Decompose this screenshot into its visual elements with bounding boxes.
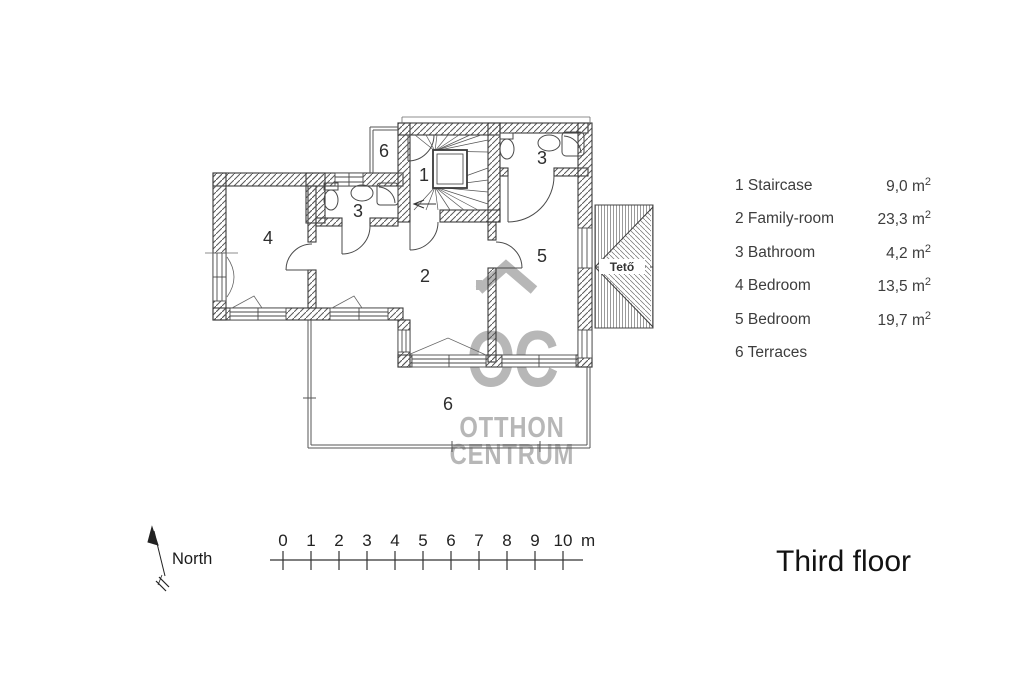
toilet-icon bbox=[324, 190, 338, 210]
room-label-staircase: 1 bbox=[419, 165, 429, 185]
sink-icon bbox=[351, 185, 373, 201]
legend-row: 2 Family-room23,3 m2 bbox=[735, 203, 931, 237]
doors bbox=[286, 135, 554, 270]
page-title: Third floor bbox=[776, 545, 911, 579]
toilet-icon bbox=[500, 139, 514, 159]
legend-row: 3 Bathroom4,2 m2 bbox=[735, 236, 931, 270]
room-label-terrace-bottom: 6 bbox=[443, 394, 453, 414]
north-label: North bbox=[172, 550, 212, 569]
legend-room-area: 13,5 m2 bbox=[877, 276, 931, 296]
legend-room-name: 4 Bedroom bbox=[735, 277, 811, 295]
scale-bar: 012345678910m bbox=[270, 531, 595, 570]
scale-tick-label: 5 bbox=[418, 531, 427, 550]
legend-room-name: 2 Family-room bbox=[735, 210, 834, 228]
terrace-bottom-rails bbox=[303, 320, 590, 452]
roof-area: Tető bbox=[595, 205, 653, 328]
roof-label: Tető bbox=[610, 260, 634, 274]
scale-tick-label: 6 bbox=[446, 531, 455, 550]
legend-room-area: 4,2 m2 bbox=[886, 243, 931, 263]
room-label-bedroom-left: 4 bbox=[263, 228, 273, 248]
scale-tick-label: 4 bbox=[390, 531, 399, 550]
room-label-terrace-top: 6 bbox=[379, 141, 389, 161]
scale-unit-label: m bbox=[581, 531, 595, 550]
legend-row: 4 Bedroom13,5 m2 bbox=[735, 270, 931, 304]
legend-row: 6 Terraces bbox=[735, 337, 931, 371]
scale-tick-label: 8 bbox=[502, 531, 511, 550]
room-label-bathroom-top: 3 bbox=[537, 148, 547, 168]
toilet-icon bbox=[500, 133, 513, 139]
legend-room-name: 6 Terraces bbox=[735, 344, 807, 362]
legend-room-name: 1 Staircase bbox=[735, 177, 813, 195]
legend-row: 5 Bedroom19,7 m2 bbox=[735, 303, 931, 337]
room-label-bedroom-right: 5 bbox=[537, 246, 547, 266]
room-legend: 1 Staircase9,0 m22 Family-room23,3 m23 B… bbox=[735, 169, 931, 370]
legend-room-area: 23,3 m2 bbox=[877, 209, 931, 229]
eave-lines bbox=[402, 117, 590, 123]
legend-room-name: 3 Bathroom bbox=[735, 244, 815, 262]
room-label-family-room: 2 bbox=[420, 266, 430, 286]
scale-tick-label: 7 bbox=[474, 531, 483, 550]
scale-tick-label: 2 bbox=[334, 531, 343, 550]
floorplan-page: OC OTTHON CENTRUM bbox=[0, 0, 1024, 690]
legend-room-area: 19,7 m2 bbox=[877, 310, 931, 330]
north-arrow-icon bbox=[148, 527, 169, 591]
scale-tick-label: 9 bbox=[530, 531, 539, 550]
room-label-bathroom-middle: 3 bbox=[353, 201, 363, 221]
casement-marks bbox=[205, 253, 486, 355]
scale-tick-label: 3 bbox=[362, 531, 371, 550]
scale-tick-label: 0 bbox=[278, 531, 287, 550]
legend-room-name: 5 Bedroom bbox=[735, 311, 811, 329]
legend-room-area: 9,0 m2 bbox=[886, 176, 931, 196]
scale-tick-label: 1 bbox=[306, 531, 315, 550]
legend-row: 1 Staircase9,0 m2 bbox=[735, 169, 931, 203]
scale-tick-label: 10 bbox=[554, 531, 573, 550]
